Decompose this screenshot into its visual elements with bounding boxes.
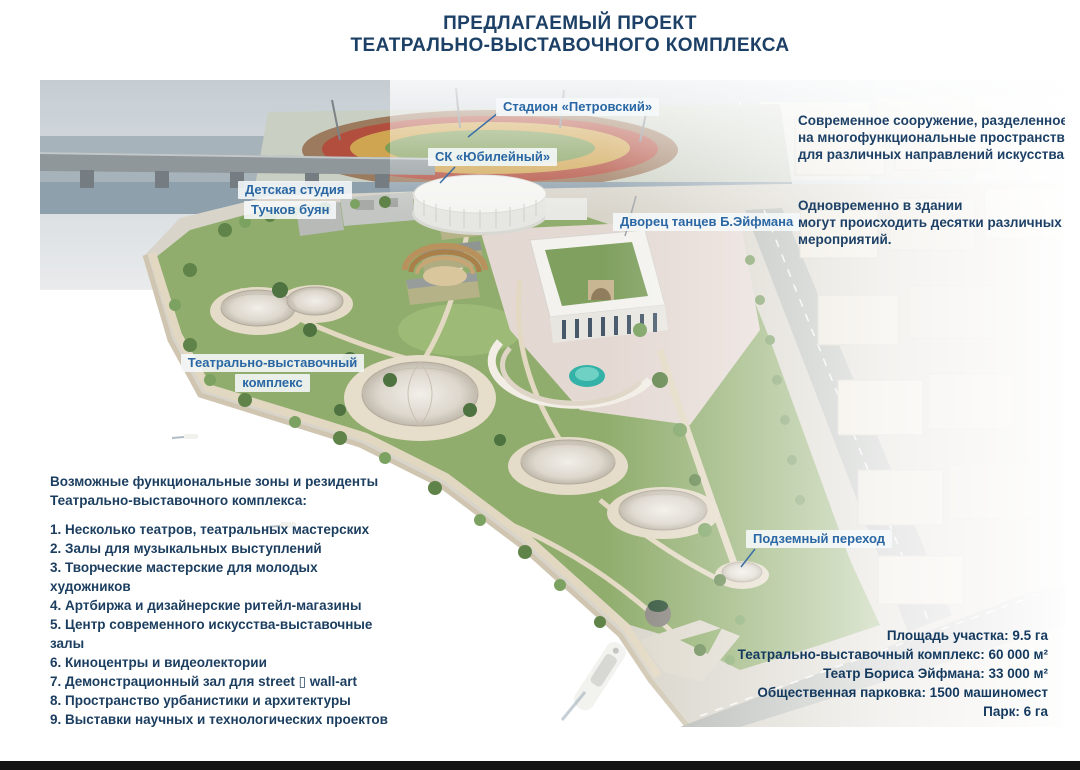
functional-zones-heading: Возможные функциональные зоны и резидент… (50, 472, 395, 510)
stat-line: Театр Бориса Эйфмана: 33 000 м² (738, 664, 1048, 683)
map-label-perehod: Подземный переход (746, 530, 892, 548)
zone-item: 8. Пространство урбанистики и архитектур… (50, 691, 395, 710)
bottom-bar (0, 761, 1080, 770)
map-label-stadium: Стадион «Петровский» (496, 98, 659, 116)
zone-item: 4. Артбиржа и дизайнерские ритейл-магази… (50, 596, 395, 615)
stat-line: Театрально-выставочный комплекс: 60 000 … (738, 645, 1048, 664)
map-label-tvk: Театрально-выставочный комплекс (170, 353, 375, 393)
zone-item: 1. Несколько театров, театральных мастер… (50, 520, 395, 539)
functional-zones-list: 1. Несколько театров, театральных мастер… (50, 520, 395, 727)
map-label-detskaya-line2: Тучков буян (244, 201, 336, 219)
stat-line: Общественная парковка: 1500 машиномест (738, 683, 1048, 702)
page-title-line1: ПРЕДЛАГАЕМЫЙ ПРОЕКТ (60, 13, 1080, 35)
map-label-tvk-line2: комплекс (235, 374, 309, 392)
stat-line: Парк: 6 га (738, 702, 1048, 721)
map-label-eifman: Дворец танцев Б.Эйфмана (613, 213, 800, 231)
functional-zones-block: Возможные функциональные зоны и резидент… (50, 472, 395, 727)
description-para1: Современное сооружение, разделенное на м… (798, 112, 1065, 163)
zone-item: 7. Демонстрационный зал для street ▯ wal… (50, 672, 395, 691)
description-block: Современное сооружение, разделенное на м… (798, 95, 1065, 265)
description-para2: Одновременно в здании могут происходить … (798, 197, 1065, 248)
project-stats: Площадь участка: 9.5 га Театрально-выста… (738, 626, 1048, 721)
aerial-render: Стадион «Петровский» СК «Юбилейный» Детс… (40, 80, 1065, 727)
zone-item: 2. Залы для музыкальных выступлений (50, 539, 395, 558)
zone-item: 3. Творческие мастерские для молодых худ… (50, 558, 395, 596)
stat-line: Площадь участка: 9.5 га (738, 626, 1048, 645)
page-title-line2: ТЕАТРАЛЬНО-ВЫСТАВОЧНОГО КОМПЛЕКСА (60, 35, 1080, 57)
map-label-yubileyny: СК «Юбилейный» (428, 148, 557, 166)
map-label-tvk-line1: Театрально-выставочный (181, 354, 365, 372)
map-label-detskaya-line1: Детская студия (238, 181, 352, 199)
zone-item: 9. Выставки научных и технологических пр… (50, 710, 395, 727)
page-title: ПРЕДЛАГАЕМЫЙ ПРОЕКТ ТЕАТРАЛЬНО-ВЫСТАВОЧН… (60, 13, 1080, 57)
zone-item: 5. Центр современного искусства-выставоч… (50, 615, 395, 653)
zone-item: 6. Киноцентры и видеолектории (50, 653, 395, 672)
